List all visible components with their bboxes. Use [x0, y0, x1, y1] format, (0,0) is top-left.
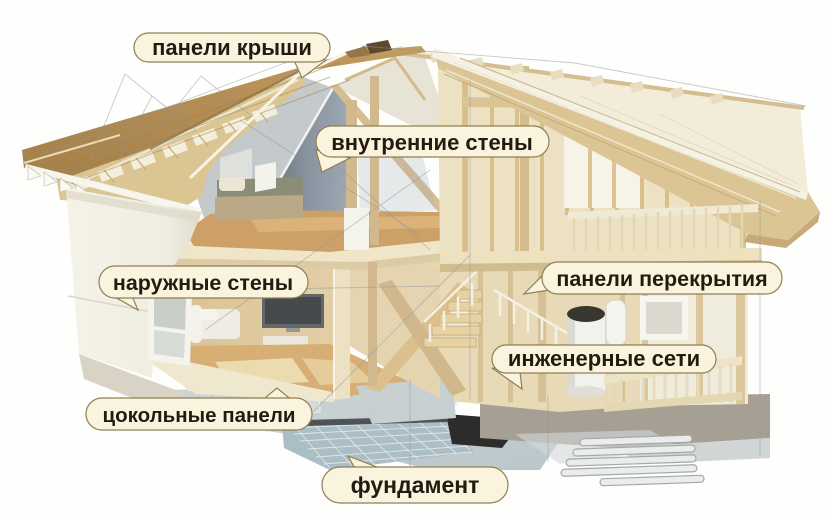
- svg-text:фундамент: фундамент: [351, 472, 480, 498]
- svg-text:внутренние стены: внутренние стены: [331, 130, 533, 155]
- svg-text:инженерные сети: инженерные сети: [508, 346, 700, 371]
- svg-text:панели крыши: панели крыши: [152, 35, 312, 60]
- svg-text:наружные стены: наружные стены: [113, 271, 293, 295]
- svg-text:панели перекрытия: панели перекрытия: [556, 267, 767, 291]
- svg-text:цокольные панели: цокольные панели: [103, 404, 296, 427]
